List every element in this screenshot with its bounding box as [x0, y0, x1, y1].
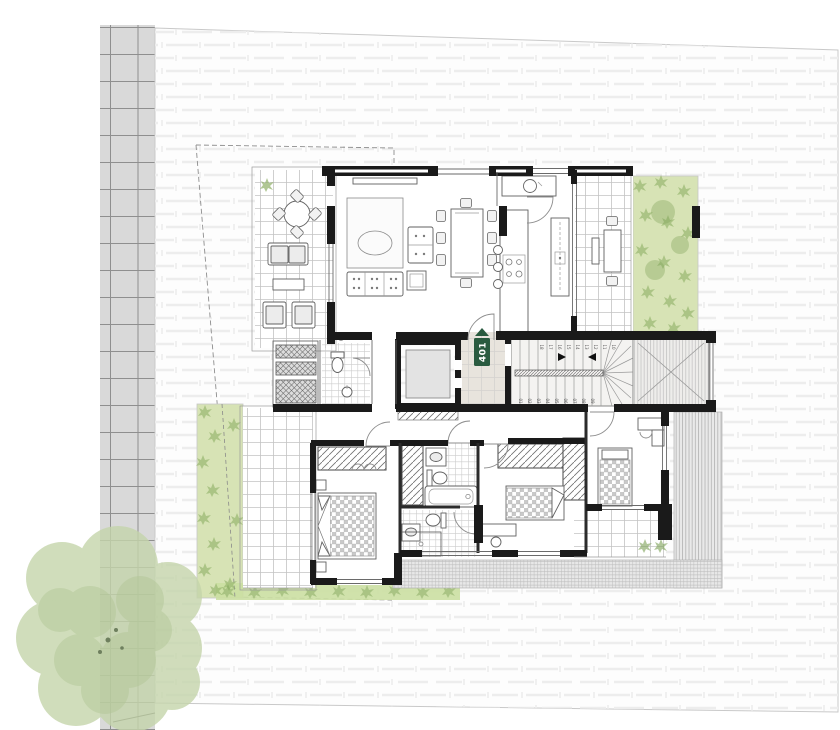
wall-pier-4: [571, 170, 577, 184]
stair-step-number: 11: [602, 344, 607, 350]
wall-pier-garden-east: [692, 206, 700, 238]
wall-pier-3: [327, 302, 335, 344]
kitchen-island: [551, 218, 569, 296]
outdoor-armchair-1: [263, 302, 286, 328]
wall-pier-6: [706, 331, 716, 343]
bed-2: [506, 486, 564, 520]
stair-step-number: 08: [581, 398, 586, 404]
loveseat: [408, 227, 433, 263]
wall-south-3: [492, 550, 518, 557]
staircase: 181716151413121110 010203040506070809: [511, 338, 633, 406]
wc-floor-tiles: [322, 343, 370, 407]
bistro-table: [604, 230, 621, 272]
appliance-1: [276, 345, 316, 358]
terrace-southwest-tiles: [243, 408, 313, 588]
wall-mid-south-2: [396, 404, 588, 412]
stair-step-numbers-upper: 181716151413121110: [539, 344, 616, 350]
sofa: [347, 272, 403, 296]
rug: [347, 198, 403, 268]
outdoor-coffee-table: [273, 279, 304, 290]
appliance-3: [276, 380, 316, 403]
wall-pier-kitchen: [499, 206, 507, 236]
stair-step-number: 12: [593, 344, 598, 350]
bed-master: [318, 493, 376, 559]
wc-room: [322, 334, 370, 407]
utility-units: [273, 341, 318, 407]
wall-step-corner: [394, 553, 402, 585]
nightstand-1: [316, 480, 326, 490]
pillow-bed-3: [602, 450, 628, 459]
stair-step-number: 10: [611, 344, 616, 350]
elevator-door-gap-1: [454, 360, 462, 370]
outdoor-sofa: [268, 243, 308, 265]
outdoor-armchair-2: [292, 302, 315, 328]
wall-pier-se-corner: [658, 504, 672, 540]
floor-plan-canvas: 181716151413121110 010203040506070809: [0, 0, 840, 730]
tv-console: [353, 178, 417, 184]
wc-toilet: [331, 352, 344, 373]
bar-stool-3: [494, 280, 503, 289]
wall-hall-south-1: [311, 440, 364, 446]
stair-handrail: [515, 370, 603, 376]
bedroom-master: [316, 447, 386, 572]
wall-bed2-north: [508, 438, 587, 444]
wall-bed3-east-1: [661, 412, 669, 426]
wall-master-west-1: [310, 443, 316, 493]
bathroom-1-sink: [426, 448, 446, 466]
wall-mid-2: [396, 332, 468, 340]
floor-plan-drawing: 181716151413121110 010203040506070809: [0, 0, 840, 730]
stair-step-number: 14: [575, 344, 580, 350]
wall-mid-3: [496, 331, 716, 340]
appliance-2: [276, 362, 316, 375]
bar-stool-1: [494, 246, 503, 255]
bed-3: [598, 448, 632, 506]
wall-south-2: [400, 550, 422, 557]
terrace-breakfast-tiles: [575, 170, 631, 332]
dining-table: [451, 209, 483, 277]
stair-void-shaft: [633, 338, 710, 406]
stair-step-number: 01: [518, 398, 523, 404]
wall-south-4: [560, 550, 587, 557]
stair-step-number: 16: [557, 344, 562, 350]
bathroom-2-sink: [402, 524, 420, 541]
stair-step-number: 13: [584, 344, 589, 350]
wall-pier-5: [571, 316, 577, 332]
wall-pier-1: [327, 168, 335, 186]
stair-step-number: 05: [554, 398, 559, 404]
bench: [592, 238, 599, 264]
stair-step-number: 06: [563, 398, 568, 404]
elevator-door-gap-2: [454, 378, 462, 388]
bar-stool-2: [494, 263, 503, 272]
stair-step-number: 07: [572, 398, 577, 404]
unit-number: 401: [479, 342, 489, 362]
wall-pier-bath-east: [474, 505, 483, 543]
wardrobe-master: [318, 447, 386, 470]
stair-step-number: 15: [566, 344, 571, 350]
nightstand-2: [316, 562, 326, 572]
wall-master-south-1: [311, 578, 337, 585]
wardrobe-3: [563, 438, 585, 500]
round-table: [284, 201, 310, 227]
stair-step-number: 04: [545, 398, 550, 404]
wall-mid-south-3: [614, 404, 716, 412]
wall-mid-south-1: [273, 404, 372, 412]
bathtub: [425, 486, 477, 507]
linen-closet: [402, 445, 423, 505]
side-table: [407, 271, 426, 290]
stair-step-number: 17: [548, 344, 553, 350]
wall-mid-1: [334, 332, 372, 340]
elevator-car: [406, 350, 450, 398]
stair-step-number: 03: [536, 398, 541, 404]
stair-step-number: 18: [539, 344, 544, 350]
kitchen-counter-top: [502, 176, 556, 196]
wall-bed3-south-1: [586, 504, 602, 511]
wall-pier-2: [327, 206, 335, 244]
stair-step-numbers-lower: 010203040506070809: [518, 398, 595, 404]
bathroom-2: [400, 510, 478, 557]
stair-step-number: 09: [590, 398, 595, 404]
stair-step-number: 02: [527, 398, 532, 404]
